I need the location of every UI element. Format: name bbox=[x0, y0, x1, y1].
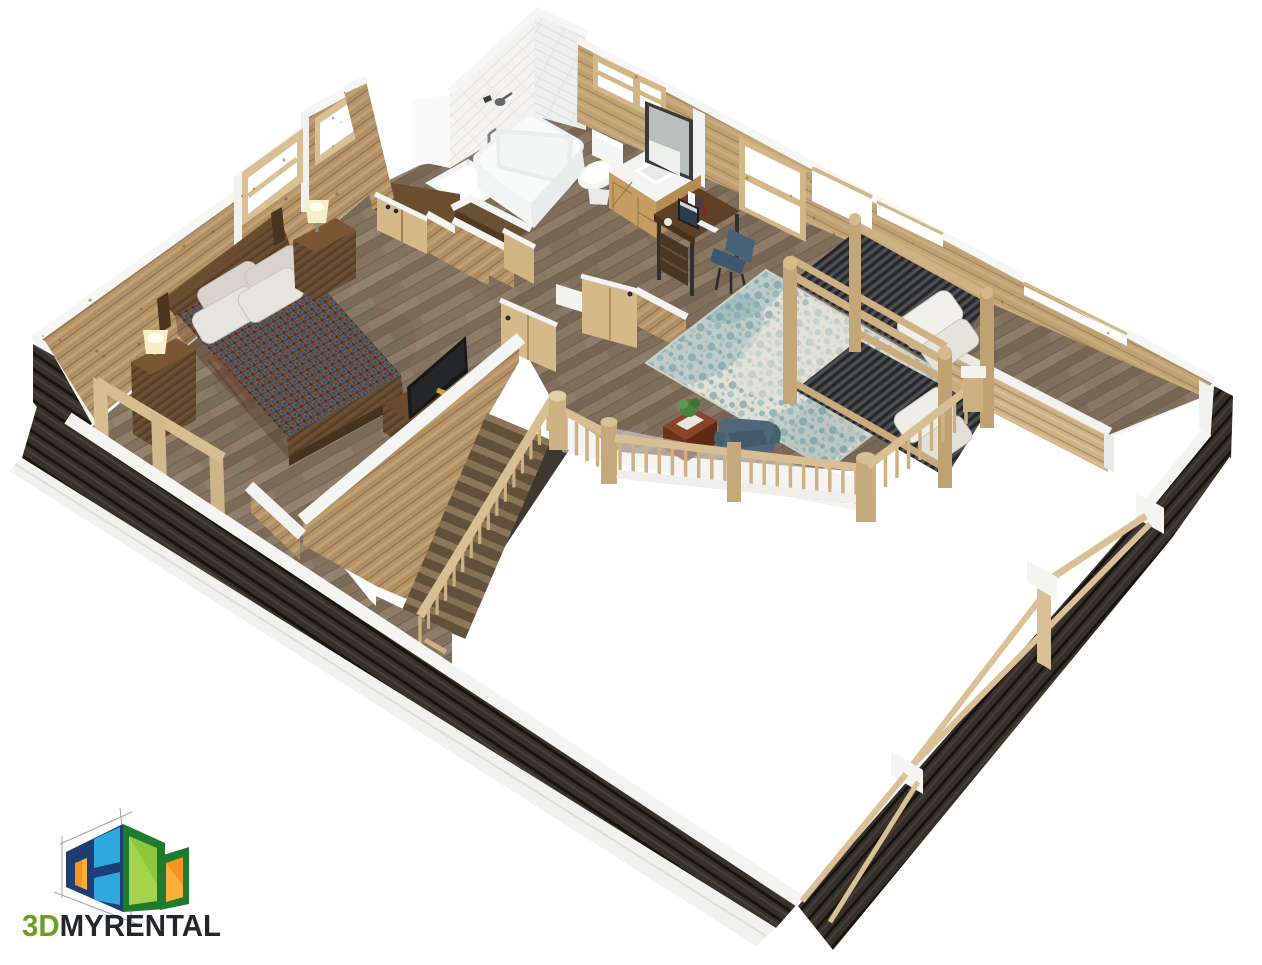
svg-text:3DMYRENTAL: 3DMYRENTAL bbox=[22, 908, 221, 943]
